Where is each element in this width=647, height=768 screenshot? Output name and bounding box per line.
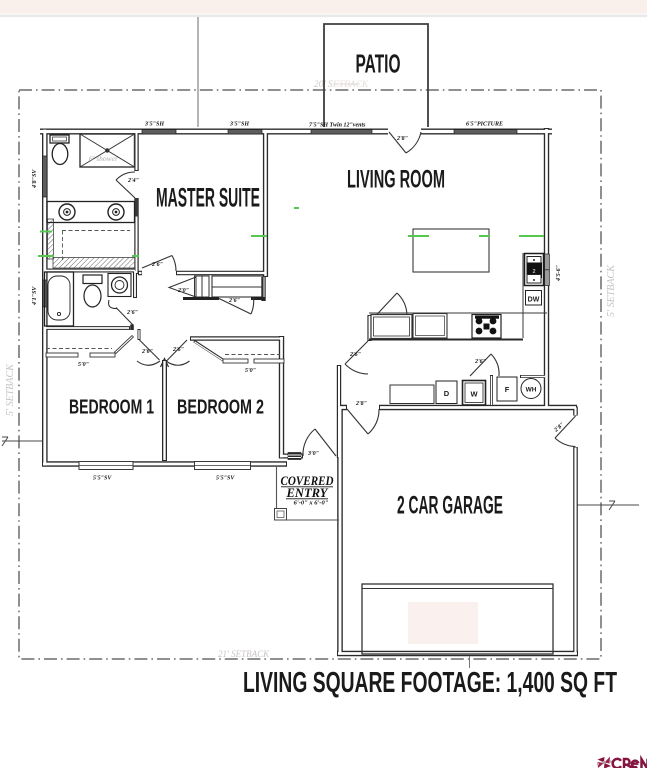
svg-text:D: D bbox=[444, 389, 450, 398]
svg-text:6'5"PICTURE: 6'5"PICTURE bbox=[466, 122, 503, 128]
svg-text:6' shower: 6' shower bbox=[89, 154, 118, 163]
svg-text:2 CAR GARAGE: 2 CAR GARAGE bbox=[397, 492, 503, 520]
svg-text:3'5"SH: 3'5"SH bbox=[144, 122, 164, 128]
svg-text:2'6": 2'6" bbox=[151, 262, 163, 268]
svg-text:ETBACK: ETBACK bbox=[332, 80, 369, 90]
svg-text:2'6": 2'6" bbox=[228, 298, 240, 304]
svg-text:2'6": 2'6" bbox=[172, 347, 184, 353]
svg-text:2'0": 2'0" bbox=[177, 288, 189, 294]
svg-text:5'5"SV: 5'5"SV bbox=[93, 476, 112, 482]
svg-text:7'5"SH Twin 12"vents: 7'5"SH Twin 12"vents bbox=[309, 123, 366, 129]
svg-text:WH: WH bbox=[526, 387, 537, 394]
svg-text:LIVING SQUARE FOOTAGE: 1,400 S: LIVING SQUARE FOOTAGE: 1,400 SQ FT bbox=[243, 667, 617, 699]
svg-text:4'5-6": 4'5-6" bbox=[556, 265, 562, 282]
svg-text:ENTRY: ENTRY bbox=[286, 485, 329, 500]
svg-text:F: F bbox=[505, 385, 510, 394]
svg-text:5' SETBACK: 5' SETBACK bbox=[5, 363, 16, 416]
svg-text:2'6": 2'6" bbox=[141, 349, 153, 355]
svg-text:5'5"SV: 5'5"SV bbox=[216, 476, 235, 482]
svg-text:2'6": 2'6" bbox=[349, 352, 361, 358]
svg-text:3'0": 3'0" bbox=[307, 451, 319, 457]
svg-text:2'6": 2'6" bbox=[474, 359, 486, 365]
svg-text:DW: DW bbox=[528, 297, 540, 304]
svg-text:2: 2 bbox=[532, 269, 535, 275]
svg-text:5'0": 5'0" bbox=[245, 368, 256, 374]
svg-text:PATIO: PATIO bbox=[356, 49, 401, 79]
svg-text:4'8"SV: 4'8"SV bbox=[32, 169, 38, 189]
svg-text:2'8": 2'8" bbox=[355, 401, 367, 407]
svg-text:MASTER SUITE: MASTER SUITE bbox=[156, 183, 260, 213]
svg-text:2'6": 2'6" bbox=[126, 310, 138, 316]
svg-text:5' SETBACK: 5' SETBACK bbox=[606, 264, 617, 317]
svg-text:W: W bbox=[470, 390, 478, 399]
svg-text:2'8": 2'8" bbox=[396, 136, 408, 142]
svg-text:4'1"SV: 4'1"SV bbox=[32, 286, 38, 306]
svg-text:6'-0" x 6'-0": 6'-0" x 6'-0" bbox=[294, 500, 329, 507]
svg-text:21' SETBACK: 21' SETBACK bbox=[218, 649, 270, 659]
svg-text:2'4": 2'4" bbox=[127, 178, 139, 184]
svg-text:BEDROOM 2: BEDROOM 2 bbox=[177, 396, 264, 419]
svg-text:3'5"SH: 3'5"SH bbox=[229, 122, 249, 128]
svg-text:LIVING ROOM: LIVING ROOM bbox=[347, 166, 445, 194]
svg-text:BEDROOM 1: BEDROOM 1 bbox=[69, 396, 154, 419]
svg-text:5'0": 5'0" bbox=[78, 362, 89, 368]
